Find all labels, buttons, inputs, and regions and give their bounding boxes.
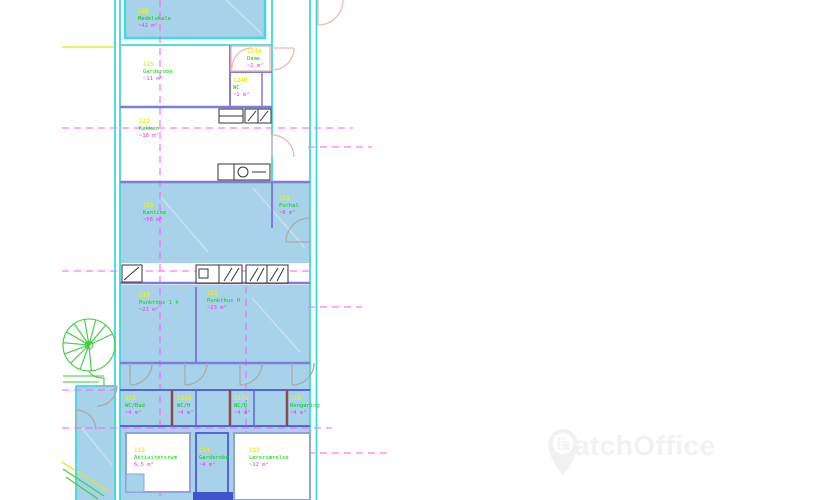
svg-text:122: 122 (139, 118, 150, 125)
svg-text:~56 m²: ~56 m² (143, 216, 163, 223)
svg-text:124B: 124B (233, 77, 248, 84)
svg-text:116: 116 (290, 395, 301, 402)
svg-text:113: 113 (249, 447, 260, 454)
svg-text:Punkthus H: Punkthus H (207, 298, 240, 304)
room-number: 126 (138, 8, 149, 15)
svg-text:~21 m²: ~21 m² (139, 306, 159, 313)
svg-text:Rengøring: Rengøring (290, 403, 320, 409)
svg-text:117A: 117A (177, 395, 192, 402)
room-name: Mødelokale (138, 16, 171, 22)
svg-text:125: 125 (143, 61, 154, 68)
svg-text:~23 m²: ~23 m² (207, 304, 227, 311)
svg-text:Forhal: Forhal (279, 203, 299, 209)
screenshot-root: 126 Mødelokale ~42 m² 125 Garderobe ~11 … (0, 0, 825, 500)
svg-text:Punkthus 1 h: Punkthus 1 h (139, 300, 179, 306)
svg-text:~4 m²: ~4 m² (199, 461, 216, 468)
svg-text:Garderobe: Garderobe (143, 69, 173, 75)
svg-text:Køkken: Køkken (139, 126, 159, 132)
svg-text:WC: WC (233, 85, 240, 91)
svg-text:Dame: Dame (247, 56, 260, 62)
room-area: ~42 m² (138, 22, 158, 29)
svg-text:111: 111 (279, 195, 290, 202)
svg-text:~11 m²: ~11 m² (143, 75, 163, 82)
svg-text:6,5 m²: 6,5 m² (134, 461, 154, 468)
svg-text:Aktivitetsrum: Aktivitetsrum (134, 455, 178, 461)
svg-text:Garderobe: Garderobe (199, 455, 229, 461)
svg-text:~4 m²: ~4 m² (290, 409, 307, 416)
svg-text:WC/Bad: WC/Bad (125, 403, 145, 409)
svg-text:120: 120 (143, 202, 154, 209)
svg-text:~4 m²: ~4 m² (125, 409, 142, 416)
svg-text:118: 118 (125, 395, 136, 402)
svg-text:114: 114 (199, 447, 210, 454)
svg-text:WC/D: WC/D (234, 403, 247, 409)
svg-text:119: 119 (139, 292, 150, 299)
label-garderobe-upper: 125 Garderobe ~11 m² (143, 61, 173, 82)
floorplan-canvas: 126 Mødelokale ~42 m² 125 Garderobe ~11 … (0, 0, 825, 500)
label-wc-upper: 124B WC ~1 m² (233, 77, 250, 98)
map-pin-building-icon (544, 428, 582, 478)
svg-text:Lærerværelse: Lærerværelse (249, 455, 289, 461)
svg-text:~18 m²: ~18 m² (139, 132, 159, 139)
label-dame: 124A Dame ~2 m² (247, 48, 264, 69)
svg-text:~4 m²: ~4 m² (234, 409, 251, 416)
svg-text:WC/H: WC/H (177, 403, 190, 409)
svg-text:~8 m²: ~8 m² (279, 209, 296, 216)
svg-text:121: 121 (207, 290, 218, 297)
svg-text:~2 m²: ~2 m² (247, 62, 264, 69)
svg-text:~1 m²: ~1 m² (233, 91, 250, 98)
svg-text:115: 115 (134, 447, 145, 454)
svg-text:Kantine: Kantine (143, 210, 166, 216)
watermark: MatchOffice (544, 428, 716, 462)
svg-text:124A: 124A (247, 48, 262, 55)
svg-text:117B: 117B (234, 395, 249, 402)
label-koekken: 122 Køkken ~18 m² (139, 118, 159, 139)
svg-text:~12 m²: ~12 m² (249, 461, 269, 468)
svg-text:~4 m²: ~4 m² (177, 409, 194, 416)
